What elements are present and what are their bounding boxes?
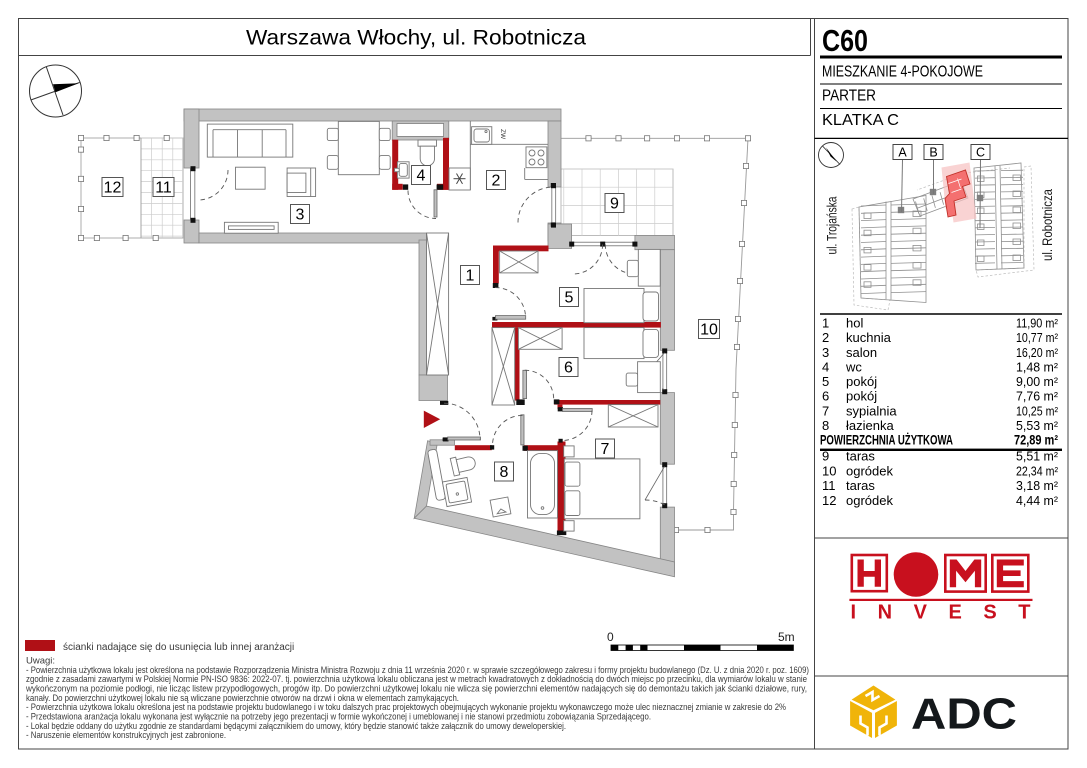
svg-text:5m: 5m	[778, 630, 795, 644]
svg-text:22,34 m²: 22,34 m²	[1016, 463, 1059, 478]
svg-text:8: 8	[822, 418, 829, 433]
svg-text:11: 11	[822, 478, 836, 493]
svg-text:sypialnia: sypialnia	[846, 403, 897, 418]
svg-text:taras: taras	[846, 449, 875, 464]
svg-text:6: 6	[822, 389, 829, 404]
svg-text:12: 12	[104, 180, 122, 197]
svg-text:PARTER: PARTER	[822, 88, 876, 105]
svg-text:4: 4	[822, 360, 829, 375]
svg-text:9: 9	[822, 449, 829, 464]
svg-text:16,20 m²: 16,20 m²	[1016, 345, 1059, 360]
svg-text:10: 10	[822, 463, 836, 478]
svg-text:5,51 m²: 5,51 m²	[1016, 449, 1059, 464]
svg-text:pokój: pokój	[846, 374, 877, 389]
svg-text:12: 12	[822, 493, 836, 508]
svg-text:7: 7	[601, 441, 610, 458]
svg-text:6: 6	[564, 360, 573, 377]
svg-text:7,76 m²: 7,76 m²	[1016, 389, 1059, 404]
svg-text:kuchnia: kuchnia	[846, 330, 892, 345]
svg-text:5: 5	[822, 374, 829, 389]
svg-text:1: 1	[466, 268, 475, 285]
svg-text:ul. Trojańska: ul. Trojańska	[825, 196, 840, 254]
svg-text:ZW: ZW	[499, 129, 506, 140]
svg-text:9,00 m²: 9,00 m²	[1016, 374, 1059, 389]
svg-text:łazienka: łazienka	[846, 418, 894, 433]
svg-text:5,53 m²: 5,53 m²	[1016, 418, 1059, 433]
svg-text:- Naruszenie elementów konstru: - Naruszenie elementów konstrukcyjnych j…	[26, 730, 226, 741]
svg-text:ścianki nadające się do usunię: ścianki nadające się do usunięcia lub in…	[63, 642, 294, 653]
svg-text:10: 10	[700, 322, 718, 339]
svg-text:4,44 m²: 4,44 m²	[1016, 493, 1059, 508]
svg-text:10,25 m²: 10,25 m²	[1016, 403, 1059, 418]
svg-text:POWIERZCHNIA UŻYTKOWA: POWIERZCHNIA UŻYTKOWA	[820, 433, 953, 448]
svg-text:4: 4	[417, 168, 426, 185]
svg-text:ogródek: ogródek	[846, 493, 893, 508]
svg-text:B: B	[929, 146, 937, 160]
svg-text:hol: hol	[846, 316, 863, 331]
svg-text:ogródek: ogródek	[846, 463, 893, 478]
svg-text:Warszawa Włochy, ul. Robotnicz: Warszawa Włochy, ul. Robotnicza	[246, 26, 586, 50]
svg-text:2: 2	[822, 330, 829, 345]
svg-text:taras: taras	[846, 478, 875, 493]
svg-text:wc: wc	[845, 360, 862, 375]
svg-text:7: 7	[822, 403, 829, 418]
svg-text:11,90 m²: 11,90 m²	[1016, 316, 1059, 331]
svg-text:1: 1	[822, 316, 829, 331]
svg-text:ul. Robotnicza: ul. Robotnicza	[1040, 189, 1055, 261]
svg-text:5: 5	[565, 290, 574, 307]
svg-text:9: 9	[610, 196, 619, 213]
svg-text:11: 11	[155, 180, 172, 197]
svg-text:10,77 m²: 10,77 m²	[1016, 330, 1059, 345]
svg-text:C: C	[976, 146, 985, 160]
svg-text:pokój: pokój	[846, 389, 877, 404]
svg-text:KLATKA C: KLATKA C	[822, 112, 899, 129]
svg-text:A: A	[898, 146, 907, 160]
svg-text:0: 0	[607, 630, 614, 644]
svg-text:MIESZKANIE 4-POKOJOWE: MIESZKANIE 4-POKOJOWE	[822, 64, 983, 81]
svg-text:salon: salon	[846, 345, 877, 360]
svg-text:3,18 m²: 3,18 m²	[1016, 478, 1059, 493]
svg-text:3: 3	[296, 207, 305, 224]
svg-text:1,48 m²: 1,48 m²	[1016, 360, 1059, 375]
svg-text:72,89 m²: 72,89 m²	[1014, 433, 1058, 448]
svg-text:ADC: ADC	[911, 690, 1017, 739]
svg-text:C60: C60	[822, 23, 868, 58]
svg-text:3: 3	[822, 345, 829, 360]
svg-text:8: 8	[500, 464, 509, 481]
svg-text:2: 2	[492, 173, 501, 190]
